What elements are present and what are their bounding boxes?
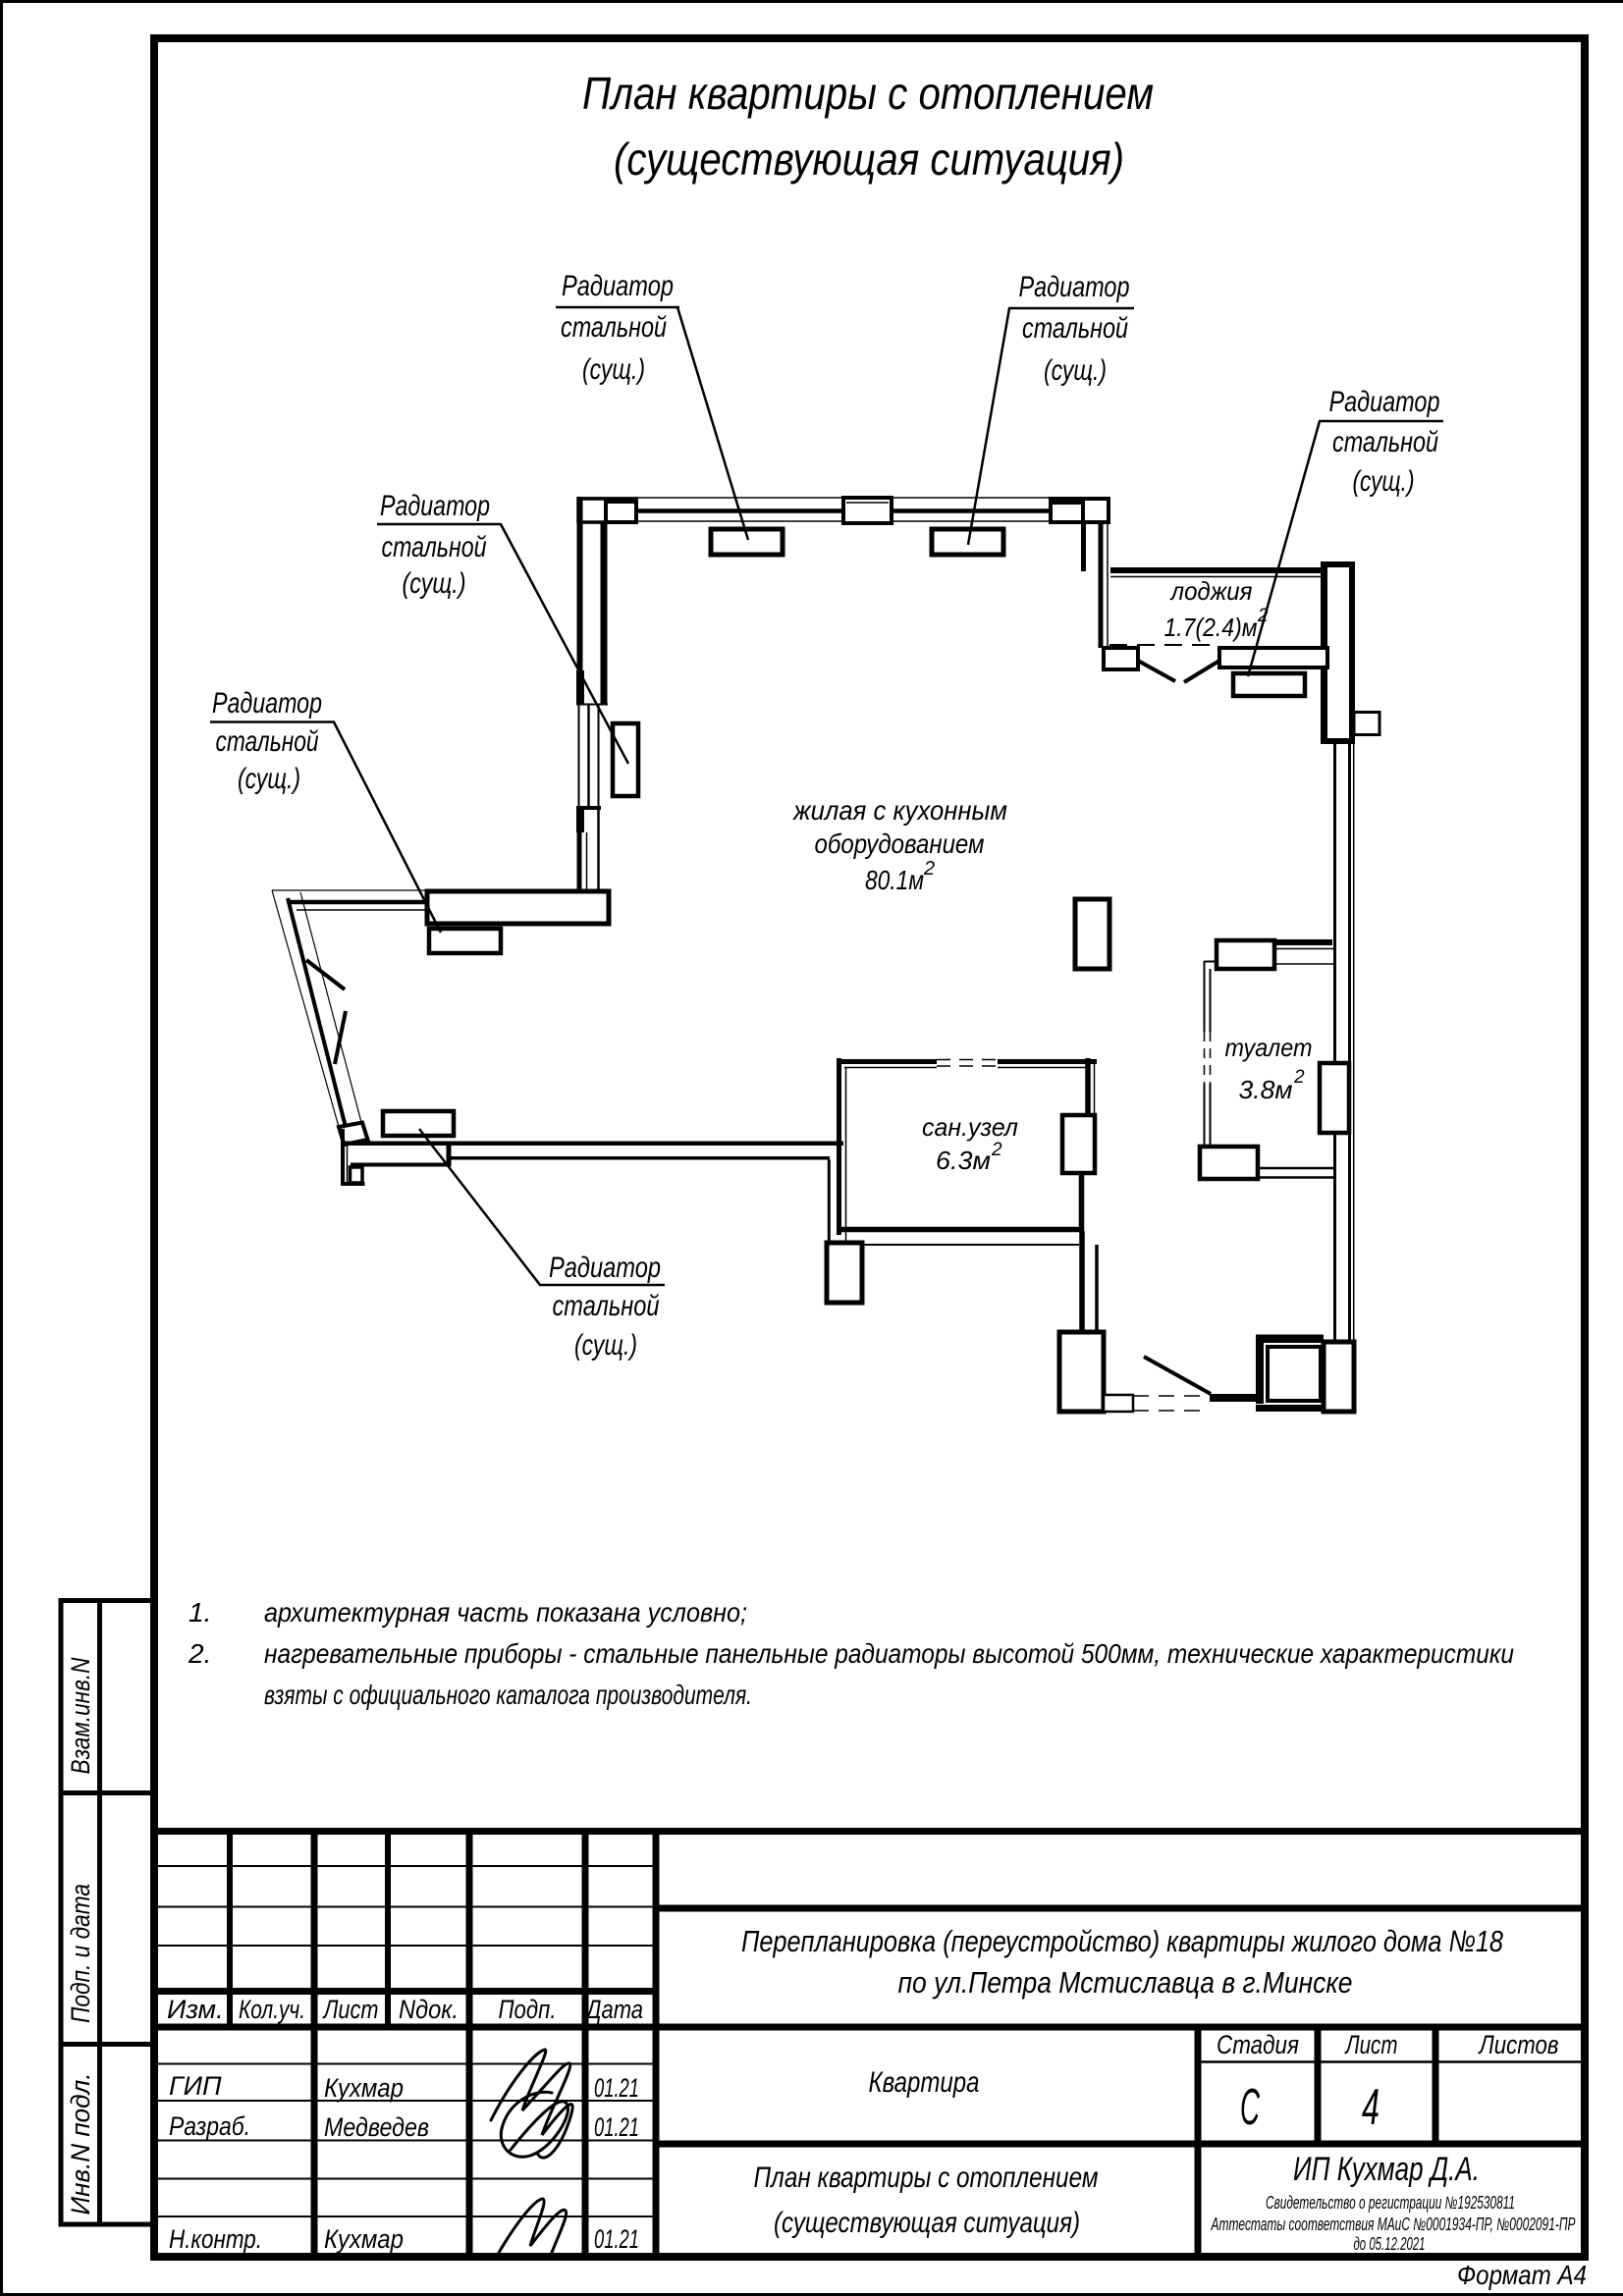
- svg-text:(сущ.): (сущ.): [1044, 354, 1107, 387]
- svg-text:оборудованием: оборудованием: [815, 828, 985, 859]
- svg-text:Инв.N подл.: Инв.N подл.: [66, 2073, 95, 2216]
- svg-text:стальной: стальной: [561, 311, 667, 344]
- svg-text:Дата: Дата: [584, 1995, 643, 2024]
- svg-text:(сущ.): (сущ.): [238, 763, 300, 795]
- svg-text:Подп.: Подп.: [499, 1995, 557, 2024]
- svg-text:архитектурная часть показана у: архитектурная часть показана условно;: [264, 1597, 747, 1628]
- svg-text:Разраб.: Разраб.: [169, 2111, 250, 2141]
- svg-text:стальной: стальной: [382, 531, 487, 563]
- svg-text:Лист: Лист: [1344, 2030, 1398, 2059]
- svg-text:Радиатор: Радиатор: [212, 687, 322, 720]
- svg-text:1.: 1.: [189, 1597, 211, 1628]
- svg-text:Лист: Лист: [322, 1995, 379, 2024]
- svg-text:(сущ.): (сущ.): [403, 567, 466, 600]
- svg-text:01.21: 01.21: [594, 2112, 639, 2142]
- svg-text:Радиатор: Радиатор: [1019, 271, 1130, 303]
- svg-text:ГИП: ГИП: [169, 2071, 222, 2101]
- svg-text:80.1м: 80.1м: [865, 865, 924, 895]
- svg-text:ИП Кухмар Д.А.: ИП Кухмар Д.А.: [1293, 2151, 1480, 2188]
- svg-text:Перепланировка (переустройство: Перепланировка (переустройство) квартиры…: [741, 1924, 1504, 1958]
- svg-text:Формат А4: Формат А4: [1457, 2260, 1587, 2290]
- svg-text:сан.узел: сан.узел: [922, 1112, 1018, 1142]
- svg-text:стальной: стальной: [1332, 426, 1438, 458]
- svg-text:жилая с кухонным: жилая с кухонным: [791, 795, 1007, 826]
- svg-text:План квартиры с отоплением: План квартиры с отоплением: [754, 2162, 1099, 2194]
- svg-text:План квартиры с отоплением: План квартиры с отоплением: [582, 68, 1154, 119]
- svg-text:туалет: туалет: [1225, 1033, 1313, 1062]
- svg-text:Радиатор: Радиатор: [1329, 386, 1440, 418]
- svg-text:Кухмар: Кухмар: [324, 2073, 404, 2103]
- svg-text:Взам.инв.N: Взам.инв.N: [66, 1657, 95, 1774]
- svg-text:Листов: Листов: [1478, 2030, 1559, 2059]
- svg-text:2: 2: [1293, 1067, 1305, 1088]
- svg-text:нагревательные приборы - сталь: нагревательные приборы - стальные панель…: [264, 1638, 1514, 1669]
- svg-text:стальной: стальной: [553, 1290, 660, 1322]
- svg-text:Квартира: Квартира: [869, 2066, 980, 2099]
- svg-text:(сущ.): (сущ.): [1353, 465, 1415, 498]
- svg-text:2: 2: [923, 858, 935, 880]
- svg-text:Кухмар: Кухмар: [324, 2224, 404, 2254]
- svg-text:3.8м: 3.8м: [1239, 1075, 1293, 1104]
- svg-text:4: 4: [1362, 2079, 1380, 2136]
- svg-text:1.7(2.4)м: 1.7(2.4)м: [1164, 613, 1258, 642]
- svg-text:взяты с официального каталога: взяты с официального каталога производит…: [264, 1680, 752, 1710]
- svg-text:(существующая ситуация): (существующая ситуация): [774, 2207, 1080, 2239]
- svg-text:(существующая ситуация): (существующая ситуация): [614, 133, 1124, 185]
- svg-text:Изм.: Изм.: [167, 1995, 224, 2024]
- svg-text:01.21: 01.21: [594, 2224, 639, 2254]
- svg-text:Радиатор: Радиатор: [380, 490, 490, 522]
- svg-text:(сущ.): (сущ.): [582, 353, 645, 386]
- svg-text:Подп. и дата: Подп. и дата: [66, 1884, 95, 2023]
- svg-text:2: 2: [1257, 606, 1269, 626]
- svg-text:стальной: стальной: [216, 725, 319, 758]
- svg-text:Аттестаты соответствия МАиС №0: Аттестаты соответствия МАиС №0001934-ПР,…: [1211, 2215, 1576, 2234]
- svg-text:Медведев: Медведев: [324, 2112, 429, 2142]
- svg-text:2: 2: [991, 1140, 1002, 1160]
- svg-text:до 05.12.2021: до 05.12.2021: [1354, 2234, 1426, 2254]
- svg-text:6.3м: 6.3м: [936, 1146, 991, 1175]
- svg-text:Стадия: Стадия: [1217, 2030, 1299, 2059]
- svg-text:стальной: стальной: [1022, 312, 1128, 345]
- svg-text:Н.контр.: Н.контр.: [169, 2224, 262, 2254]
- svg-text:01.21: 01.21: [594, 2073, 639, 2103]
- svg-text:Свидетельство о регистрации №1: Свидетельство о регистрации №192530811: [1266, 2193, 1515, 2213]
- svg-text:Радиатор: Радиатор: [562, 270, 674, 302]
- svg-text:2.: 2.: [188, 1638, 211, 1669]
- svg-text:Радиатор: Радиатор: [549, 1252, 661, 1284]
- svg-text:Nдок.: Nдок.: [399, 1995, 459, 2024]
- svg-text:лоджия: лоджия: [1169, 576, 1253, 606]
- svg-text:(сущ.): (сущ.): [574, 1329, 637, 1362]
- svg-text:Кол.уч.: Кол.уч.: [239, 1995, 305, 2024]
- svg-text:С: С: [1240, 2079, 1260, 2136]
- svg-text:по ул.Петра Мстиславца в г.Мин: по ул.Петра Мстиславца в г.Минске: [898, 1965, 1353, 2000]
